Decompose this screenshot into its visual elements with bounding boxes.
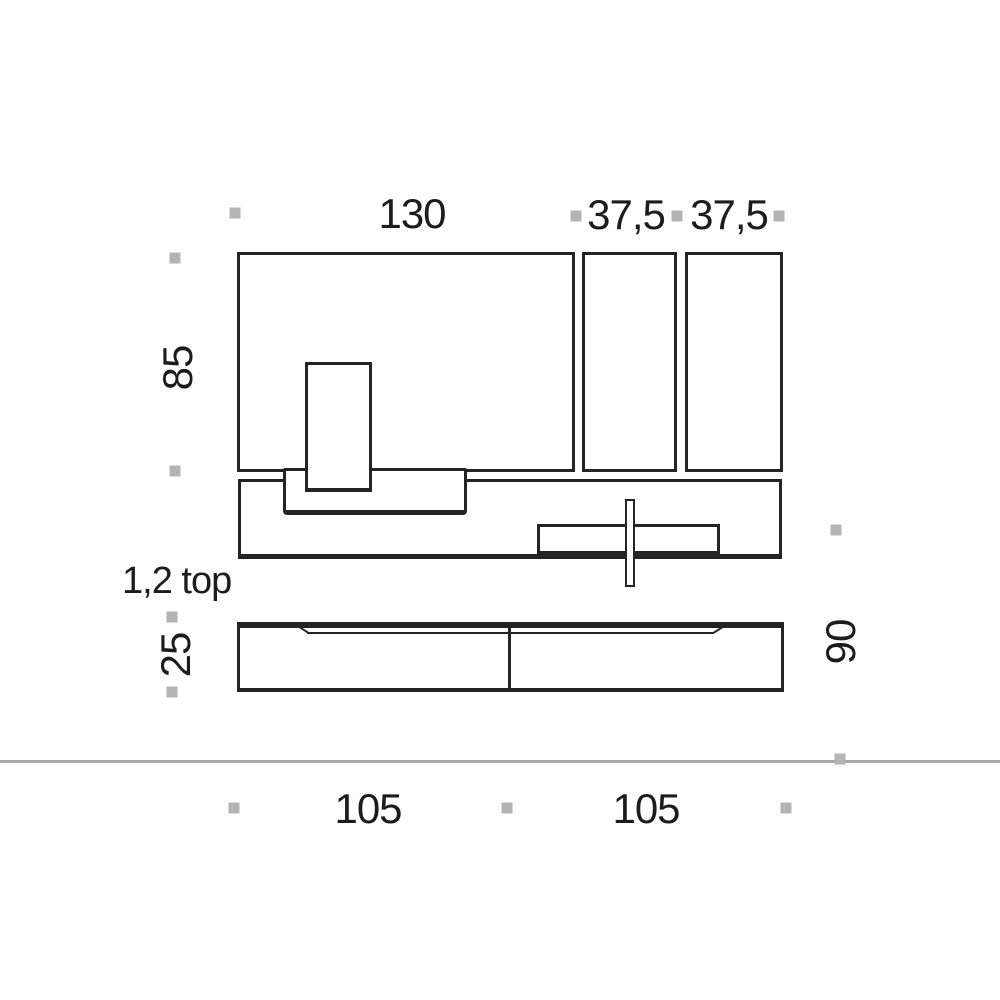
dim-upper-height: 85	[157, 346, 199, 391]
floor-baseline	[0, 760, 1000, 763]
dimension-marker	[170, 253, 181, 264]
furniture-dimension-diagram: 130 37,5 37,5 85 1,2 top 25 90 105 105	[0, 0, 1000, 1000]
upper-cabinet-main	[237, 252, 575, 472]
dim-top-width-col2: 37,5	[690, 194, 768, 236]
upper-cabinet-column-2	[685, 252, 783, 472]
dim-top-width-col1: 37,5	[587, 194, 665, 236]
dimension-marker	[167, 612, 178, 623]
dimension-marker	[571, 211, 582, 222]
tv-bracket-stem	[625, 499, 635, 587]
dim-base-width-right: 105	[612, 788, 679, 830]
dim-base-height: 25	[155, 633, 197, 678]
dimension-marker	[831, 525, 842, 536]
dimension-marker	[502, 803, 513, 814]
dimension-marker	[672, 211, 683, 222]
dimension-marker	[835, 754, 846, 765]
thickness-note: 1,2 top	[122, 562, 231, 600]
base-cabinet	[237, 622, 784, 692]
vertical-panel-object	[305, 362, 372, 492]
dim-right-depth: 90	[820, 620, 862, 665]
dimension-marker	[167, 687, 178, 698]
dim-top-width-main: 130	[378, 193, 445, 235]
dimension-marker	[774, 211, 785, 222]
dimension-marker	[230, 208, 241, 219]
dimension-marker	[781, 803, 792, 814]
dimension-marker	[229, 803, 240, 814]
dim-base-width-left: 105	[334, 788, 401, 830]
base-cabinet-divider	[508, 628, 511, 688]
dimension-marker	[170, 466, 181, 477]
upper-cabinet-column-1	[582, 252, 677, 472]
